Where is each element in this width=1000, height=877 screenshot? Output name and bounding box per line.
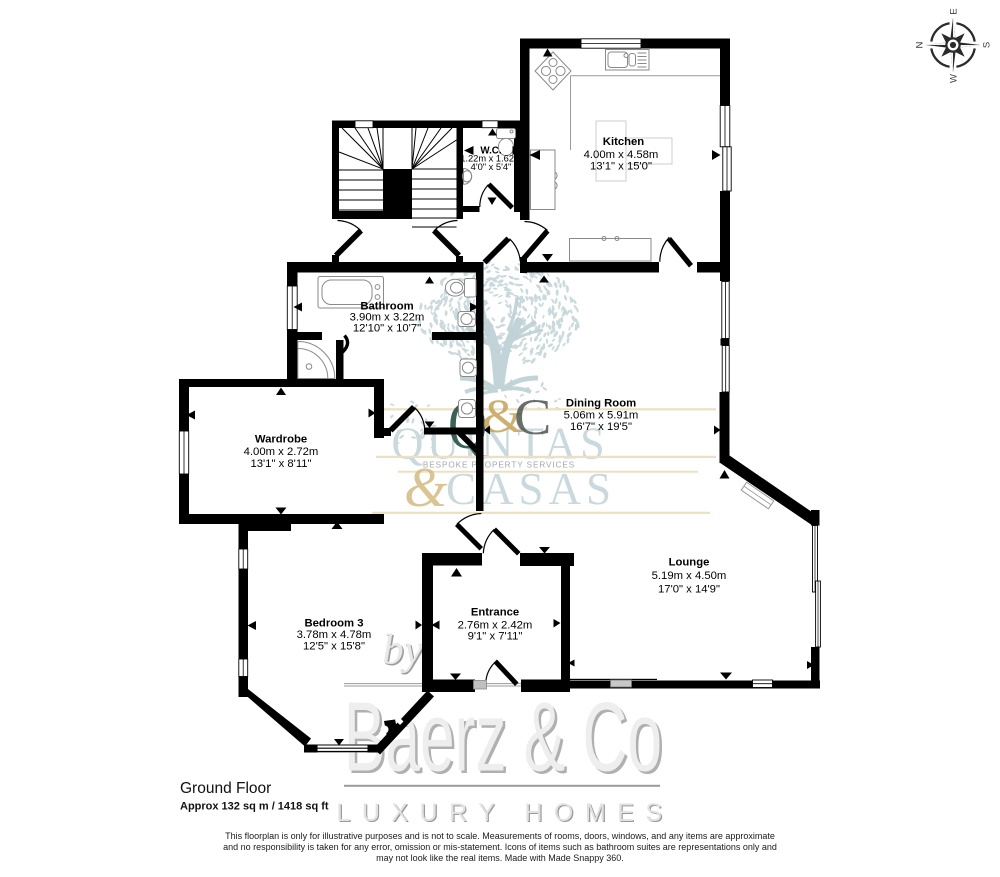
svg-text:4'0" x 5'4": 4'0" x 5'4" [471, 162, 512, 172]
svg-text:12'10" x 10'7": 12'10" x 10'7" [353, 323, 421, 335]
svg-text:9'1" x 7'11": 9'1" x 7'11" [468, 631, 523, 643]
svg-text:Lounge: Lounge [669, 557, 710, 569]
svg-text:Ground Floor: Ground Floor [180, 780, 271, 797]
svg-text:may not look like the real ite: may not look like the real items. Made w… [376, 853, 624, 863]
svg-text:CASAS: CASAS [446, 464, 616, 514]
svg-text:Kitchen: Kitchen [603, 136, 645, 148]
svg-text:Entrance: Entrance [471, 607, 519, 619]
svg-text:4.00m x 2.72m: 4.00m x 2.72m [244, 446, 319, 458]
svg-text:3.78m x 4.78m: 3.78m x 4.78m [297, 629, 372, 641]
svg-text:LUXURY HOMES: LUXURY HOMES [336, 799, 673, 827]
svg-text:W: W [948, 74, 959, 83]
svg-text:4.00m x 4.58m: 4.00m x 4.58m [584, 149, 659, 161]
svg-text:C: C [514, 388, 551, 445]
svg-text:16'7" x 19'5": 16'7" x 19'5" [570, 421, 632, 433]
svg-text:Approx 132 sq m / 1418 sq ft: Approx 132 sq m / 1418 sq ft [180, 801, 329, 813]
svg-text:2.76m x 2.42m: 2.76m x 2.42m [458, 619, 533, 631]
svg-text:12'5" x 15'8": 12'5" x 15'8" [303, 641, 365, 653]
svg-text:5.19m x 4.50m: 5.19m x 4.50m [652, 570, 727, 582]
svg-text:&: & [404, 457, 448, 519]
svg-text:E: E [948, 8, 959, 14]
svg-text:13'1" x 8'11": 13'1" x 8'11" [250, 458, 311, 470]
svg-text:N: N [915, 41, 926, 48]
svg-text:Dining Room: Dining Room [566, 398, 636, 410]
svg-text:Wardrobe: Wardrobe [255, 434, 307, 446]
svg-text:by: by [382, 627, 424, 674]
svg-text:5.06m x 5.91m: 5.06m x 5.91m [564, 410, 639, 422]
svg-text:17'0" x 14'9": 17'0" x 14'9" [658, 584, 720, 596]
svg-text:13'1" x 15'0": 13'1" x 15'0" [590, 161, 652, 173]
svg-text:This floorplan is only for ill: This floorplan is only for illustrative … [225, 831, 775, 841]
svg-text:Bedroom 3: Bedroom 3 [304, 618, 363, 630]
svg-text:and no responsibility is taken: and no responsibility is taken for any e… [223, 842, 777, 852]
svg-text:S: S [982, 42, 993, 48]
